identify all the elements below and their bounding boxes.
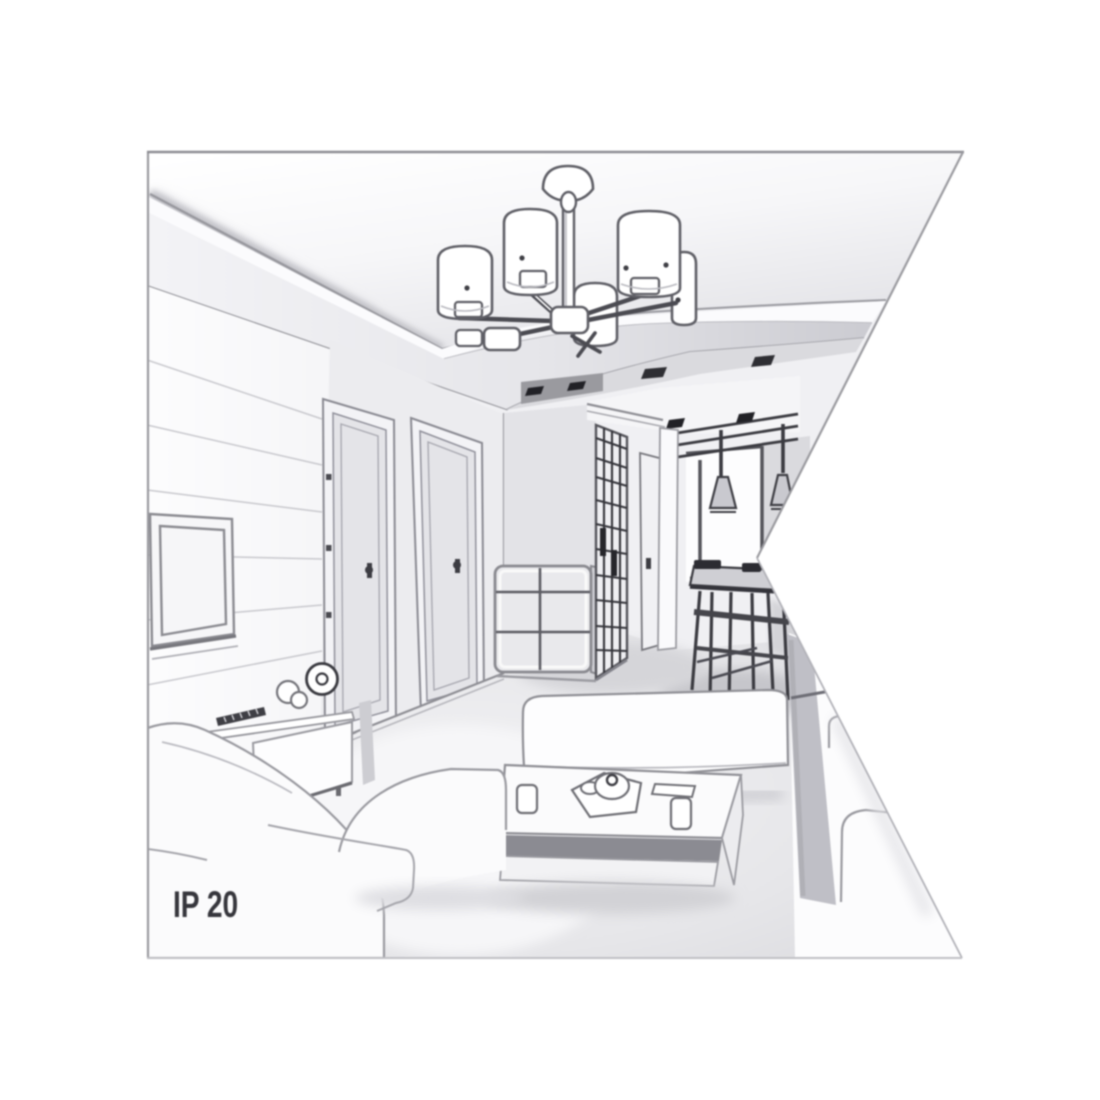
svg-text:IP 20: IP 20	[173, 884, 238, 926]
